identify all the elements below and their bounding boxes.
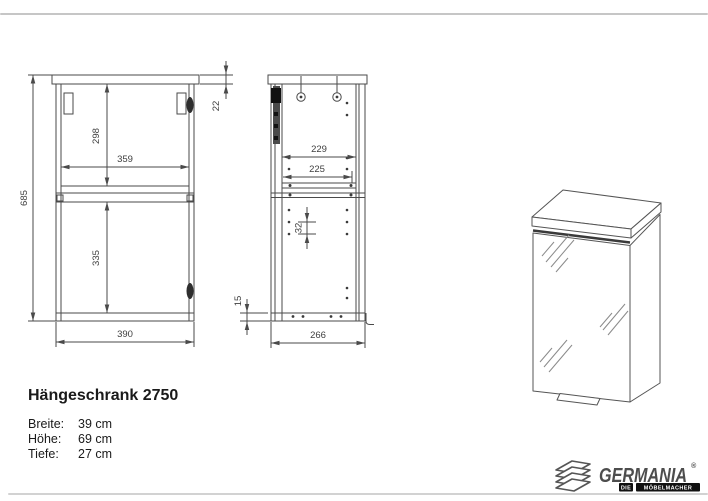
dim-label-lower-inner-height: 335 [91, 250, 102, 266]
dim-label-top-panel-thickness: 22 [211, 101, 222, 112]
dim-label-upper-inner-height: 298 [91, 128, 102, 144]
hinge-icon-bottom [187, 283, 194, 299]
dim-label-inner-depth: 229 [311, 144, 327, 155]
brand-logo: GERMANIA ® DIE MÖBELMACHER [556, 461, 700, 492]
spec-label-height: Höhe: [28, 432, 78, 447]
germania-layers-icon [556, 461, 590, 491]
brand-registered-mark: ® [691, 462, 697, 470]
spec-value-depth: 27 cm [78, 447, 112, 461]
spec-row-depth: Tiefe:27 cm [28, 447, 112, 462]
door-handle-profile [366, 313, 374, 325]
spec-row-width: Breite:39 cm [28, 417, 112, 432]
product-specs: Breite:39 cm Höhe:69 cm Tiefe:27 cm [28, 417, 112, 462]
spec-label-depth: Tiefe: [28, 447, 78, 462]
dim-label-bottom-panel: 15 [233, 296, 244, 307]
product-drawing-page: 685 298 359 335 390 22 [0, 0, 708, 501]
dim-label-depth-total: 266 [310, 330, 326, 341]
product-title: Hängeschrank 2750 [28, 387, 178, 405]
perspective-view [532, 190, 661, 405]
dim-label-hole-pitch: 32 [294, 223, 305, 234]
spec-label-width: Breite: [28, 417, 78, 432]
dim-label-shelf-depth: 225 [309, 164, 325, 175]
dim-label-inner-width: 359 [117, 154, 133, 165]
spec-value-width: 39 cm [78, 417, 112, 431]
spec-value-height: 69 cm [78, 432, 112, 446]
side-view: 229 225 32 15 266 [233, 75, 374, 348]
dim-label-height-total: 685 [19, 190, 30, 206]
front-view: 685 298 359 335 390 22 [19, 61, 233, 347]
cabinet-side-face [630, 215, 660, 403]
brand-tagline-word1: DIE [621, 486, 631, 492]
hinge-icon-top [187, 97, 194, 113]
brand-tagline-word2: MÖBELMACHER [644, 485, 692, 492]
mirror-door-face [533, 233, 630, 402]
spec-row-height: Höhe:69 cm [28, 432, 112, 447]
bottom-divider-line [8, 493, 708, 495]
dim-label-width-total: 390 [117, 329, 133, 340]
